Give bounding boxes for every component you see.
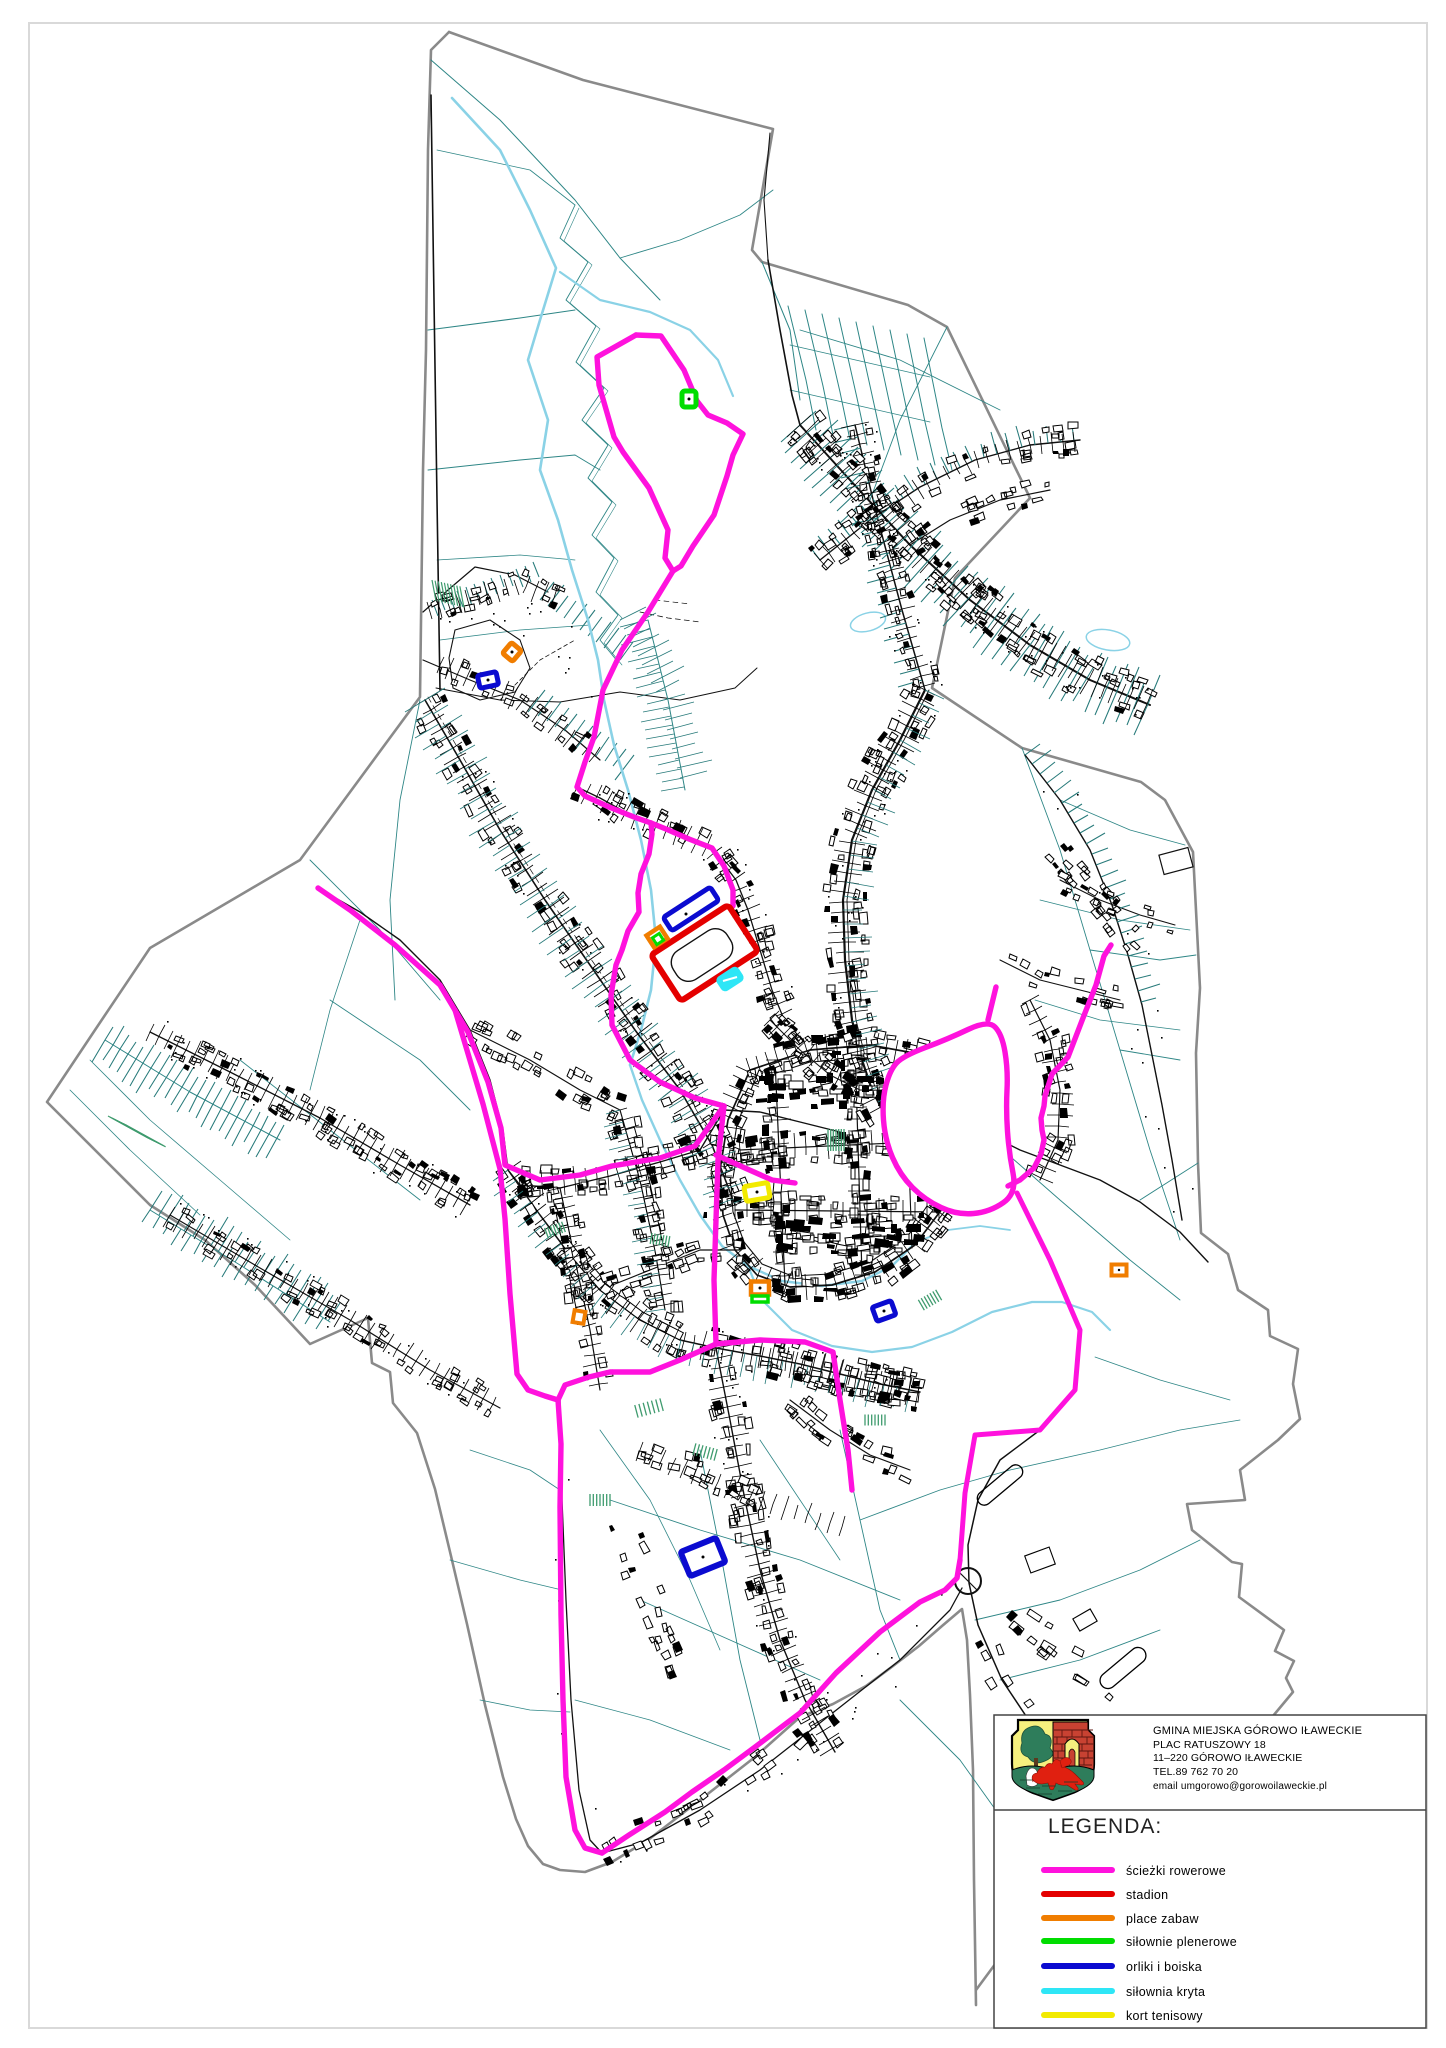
svg-text:stadion: stadion (1126, 1888, 1168, 1902)
svg-text:siłownie plenerowe: siłownie plenerowe (1126, 1935, 1237, 1949)
svg-text:GMINA MIEJSKA GÓROWO IŁAWECKIE: GMINA MIEJSKA GÓROWO IŁAWECKIE (1153, 1724, 1362, 1737)
svg-text:LEGENDA:: LEGENDA: (1048, 1815, 1162, 1838)
svg-text:PLAC RATUSZOWY 18: PLAC RATUSZOWY 18 (1153, 1739, 1266, 1751)
svg-text:ścieżki rowerowe: ścieżki rowerowe (1126, 1864, 1226, 1878)
svg-text:kort tenisowy: kort tenisowy (1126, 2009, 1203, 2023)
svg-text:email umgorowo@gorowoilaweckie: email umgorowo@gorowoilaweckie.pl (1153, 1781, 1327, 1792)
svg-text:siłownia kryta: siłownia kryta (1126, 1985, 1205, 1999)
svg-text:TEL.89 762 70 20: TEL.89 762 70 20 (1153, 1766, 1238, 1778)
svg-text:place zabaw: place zabaw (1126, 1912, 1199, 1926)
svg-text:orliki i boiska: orliki i boiska (1126, 1960, 1202, 1974)
svg-text:11–220 GÓROWO IŁAWECKIE: 11–220 GÓROWO IŁAWECKIE (1153, 1751, 1302, 1764)
